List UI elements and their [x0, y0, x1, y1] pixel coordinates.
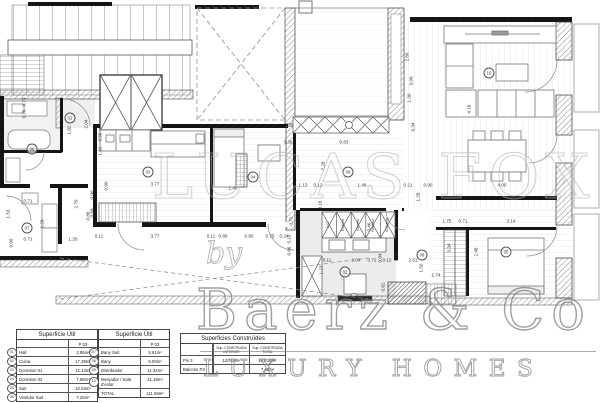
balconies [574, 24, 599, 300]
dimension-label: 1.50 [395, 253, 400, 262]
table-row-ref: 05 [7, 384, 17, 394]
dimension-label: 0.62 [382, 283, 387, 292]
table-header-row: Sup. CONSTRUIDA INTERIORSup. CONSTRUIDA … [181, 344, 285, 356]
table-subheader-col: P 03 [69, 340, 97, 347]
table-row: 02Cuina17.39m² [17, 357, 97, 366]
table-subheader-col: P 03 [141, 340, 169, 347]
table-row-ref: 10 [89, 377, 99, 387]
room-ref: 02 [340, 267, 351, 278]
dimension-label: 0.71 [459, 220, 468, 225]
table-row-ref: 07 [89, 348, 99, 358]
floor-plan-drawing: 3.380.837.281.130.121.490.210.904.003.77… [0, 0, 600, 310]
dimension-label: 2.04 [85, 120, 90, 129]
closet-label: Rebost [342, 219, 346, 231]
dimension-label: 5.10 [288, 235, 293, 244]
dimension-label: 0.72 [290, 217, 295, 226]
room-name-cell: Vestidor Suit [17, 393, 69, 401]
room-ref: 01 [65, 113, 76, 124]
room-area-cell: 5.61m² [141, 348, 169, 356]
dimension-label: 0.75 [266, 235, 275, 240]
room-ref: 06 [27, 144, 38, 155]
dimension-label: 0.90 [105, 182, 110, 191]
table-row: Pis 3120.16m²131.10m² [181, 356, 285, 365]
dimension-label: 1.74 [432, 274, 441, 279]
area-cell: 120.16m² [213, 356, 249, 364]
dimension-label: 3.34 [448, 244, 453, 253]
dimension-label: 3.77 [151, 183, 160, 188]
dimension-label: 0.90 [245, 235, 254, 240]
dimension-label: 0.90 [10, 239, 15, 248]
room-ref: 05 [501, 247, 512, 258]
dimension-label: 0.21 [404, 184, 413, 189]
table-row: 01Hall2.85m² [17, 348, 97, 357]
room-name-cell: Hall [17, 348, 69, 356]
table-header-spacer [181, 344, 213, 355]
dimension-label: 0.88 [87, 212, 92, 221]
dimension-label: 3.14 [507, 220, 516, 225]
room-name-cell: TOTAL [99, 389, 141, 397]
surface-table-util-1: Superficie ÚtilP 0301Hall2.85m²02Cuina17… [16, 329, 98, 402]
dimension-label: 1.30 [408, 94, 413, 103]
dimension-label: 0.75 [23, 110, 28, 119]
table-subheader-spacer [17, 340, 69, 347]
room-area-cell: 31.48m² [141, 375, 169, 388]
dimension-label: 3.77 [151, 235, 160, 240]
table-row: TOTAL111.58m² [99, 389, 169, 397]
dimension-label: 0.56 [99, 133, 104, 142]
room-area-cell: 7.25m² [69, 393, 97, 401]
room-name-cell: Cuina [17, 357, 69, 365]
dimension-label: 0.12 [314, 184, 323, 189]
row-label-cell: Balcons P3 [181, 365, 213, 373]
room-area-cell: 111.58m² [141, 389, 169, 397]
plan-linework [0, 0, 600, 310]
table-row: 10Menjador / Sala d'estar31.48m² [99, 375, 169, 389]
dimension-label: 0.89 [91, 209, 96, 218]
dimension-label: 2.70 [75, 200, 80, 209]
dimension-label: 0.12 [383, 259, 392, 264]
dimension-label: 1.50 [420, 264, 425, 273]
room-ref: 03 [143, 167, 154, 178]
dimension-label: 0.16 [319, 201, 324, 210]
dimension-label: 0.94 [379, 254, 384, 263]
dimension-label: 2.48 [475, 248, 480, 257]
closet-label: Nevera [357, 219, 361, 231]
dimension-label: 0.11 [95, 235, 104, 240]
table-title: Superficie Útil [99, 330, 169, 340]
dimension-label: 0.72 [368, 259, 377, 264]
dimension-label: 0.90 [424, 184, 433, 189]
dimension-label: 1.62 [99, 147, 104, 156]
table-subheader: P 03 [99, 340, 169, 348]
dimension-label: 0.34 [412, 123, 417, 132]
table-row: 06Vestidor Suit7.25m² [17, 393, 97, 401]
suite-furniture [444, 230, 544, 296]
corridor-closets [293, 117, 389, 133]
dimension-label: 7.28 [322, 162, 327, 171]
surface-table-built: Superficies ConstruïdesSup. CONSTRUIDA I… [180, 333, 286, 374]
dimension-label: 2.28 [41, 220, 46, 229]
floor-plan-page: 3.380.837.281.130.121.490.210.904.003.77… [0, 0, 600, 403]
dimension-label: 0.71 [24, 238, 33, 243]
dimension-label: 0.80 [219, 235, 228, 240]
table-row-ref: 04 [7, 375, 17, 385]
light-well [197, 8, 285, 120]
dimension-label: 2.04 [352, 259, 361, 264]
dimension-label: 3.38 [284, 141, 293, 146]
table-row-ref: 02 [7, 357, 17, 367]
table-subheader: P 03 [17, 340, 97, 348]
dimension-label: 0.66 [288, 247, 293, 256]
dimension-label: 0.73 [23, 98, 28, 107]
dimension-label: 0.83 [340, 141, 349, 146]
room-name-cell: Dormitori 02 [17, 375, 69, 383]
table-row: 07Bany Suit5.61m² [99, 348, 169, 357]
dimension-label: 1.49 [358, 184, 367, 189]
table-row: 03Dormitori 0112.13m² [17, 366, 97, 375]
table-row-ref: 03 [7, 366, 17, 376]
dimension-label: 1.53 [7, 210, 12, 219]
dimension-label: 1.20 [69, 238, 78, 243]
closet-label: Rentad. [372, 218, 376, 231]
room-name-cell: Bany [99, 357, 141, 365]
table-row: 09Distribuidor11.34m² [99, 366, 169, 375]
room-name-cell: Suit [17, 384, 69, 392]
dimension-label: 2.61 [409, 259, 418, 264]
area-cell: 7.40m² [249, 365, 285, 373]
dimension-label: 1.13 [299, 184, 308, 189]
dimension-label: 4.16 [468, 105, 473, 114]
dimension-label: 1.28 [417, 193, 422, 202]
surface-table-util-2: Superficie ÚtilP 0307Bany Suit5.61m²08Ba… [98, 329, 170, 398]
room-ref: 04 [248, 172, 259, 183]
dimension-label: 3.99 [410, 77, 415, 86]
table-row: 05Suit10.63m² [17, 384, 97, 393]
room-ref: 08 [417, 250, 428, 261]
room-area-cell: 11.34m² [141, 366, 169, 374]
dimension-label: 0.71 [24, 200, 33, 205]
room-ref: 09 [343, 167, 354, 178]
room-ref: 10 [484, 68, 495, 79]
room-area-cell: 5.00m² [141, 357, 169, 365]
room-name-cell: Menjador / Sala d'estar [99, 375, 141, 388]
row-label-cell: Pis 3 [181, 356, 213, 364]
dimension-label: 2.66 [406, 53, 411, 62]
dimension-label: 1.75 [443, 220, 452, 225]
table-header-col: Sup. CONSTRUIDA INTERIOR [213, 344, 249, 355]
table-row: 08Bany5.00m² [99, 357, 169, 366]
table-title: Superficies Construïdes [181, 334, 285, 344]
closet-label: Safareig [386, 218, 390, 232]
table-row: 04Dormitori 027.88m² [17, 375, 97, 384]
dimension-label: 0.11 [207, 235, 216, 240]
closet-label: A/C [327, 222, 331, 228]
room-name-cell: Bany Suit [99, 348, 141, 356]
dimension-label: 1.45 [229, 187, 238, 192]
area-cell [213, 365, 249, 373]
room-name-cell: Dormitori 01 [17, 366, 69, 374]
table-subheader-spacer [99, 340, 141, 347]
table-header-col: Sup. CONSTRUIDA TOTAL [249, 344, 285, 355]
table-row-ref: 09 [89, 366, 99, 376]
dimension-label: 1.82 [68, 126, 73, 135]
dimension-label: 1.23 [320, 266, 325, 275]
table-row-ref: 01 [7, 348, 17, 358]
elevator-shaft [100, 75, 162, 130]
table-title: Superficie Útil [17, 330, 97, 340]
dimension-label: 0.90 [91, 191, 96, 200]
dimension-label: 0.11 [323, 259, 332, 264]
table-row-ref: 06 [7, 393, 17, 403]
dimension-label: 4.00 [498, 184, 507, 189]
area-cell: 131.10m² [249, 356, 285, 364]
table-row-ref: 08 [89, 357, 99, 367]
staircase-top-left [0, 2, 193, 99]
room-ref: 07 [22, 223, 33, 234]
table-row: Balcons P37.40m² [181, 365, 285, 373]
dining-furniture [468, 131, 526, 181]
room-name-cell: Distribuidor [99, 366, 141, 374]
